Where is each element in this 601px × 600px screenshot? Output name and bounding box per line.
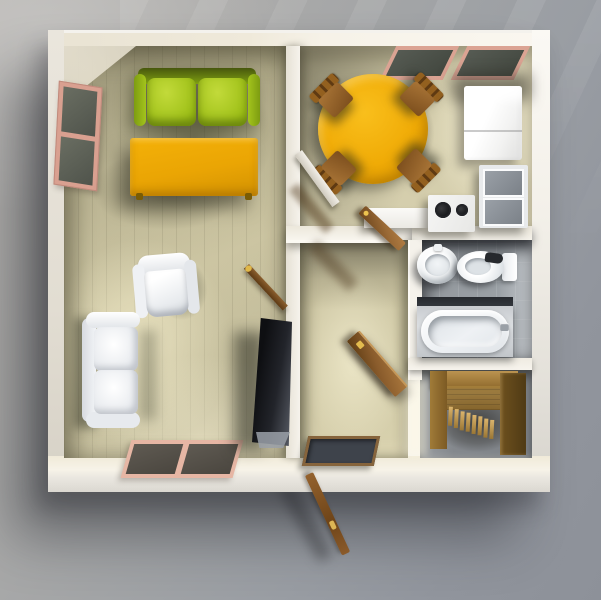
- bathtub-faucet: [500, 323, 509, 331]
- wooden-staircase: [424, 366, 528, 458]
- table-leg: [245, 193, 252, 200]
- orange-coffee-table: [130, 138, 258, 196]
- railing-slat: [483, 419, 488, 438]
- door-knob: [363, 210, 370, 217]
- railing-slat: [472, 415, 477, 434]
- green-sofa: [134, 68, 260, 130]
- sofa-armrest-left: [134, 74, 146, 126]
- fridge-door-seam: [464, 130, 522, 132]
- front-door-cast-shadow: [278, 480, 332, 562]
- door-knob: [356, 340, 365, 349]
- stove-burner: [456, 204, 468, 216]
- sink-faucet: [434, 244, 442, 251]
- floorplan-render: [0, 0, 601, 600]
- railing-slat: [460, 411, 465, 430]
- sofa-cushion: [147, 78, 196, 126]
- staircase-side-panel: [500, 373, 526, 455]
- staircase-stringer: [430, 371, 447, 449]
- loveseat-cushion: [94, 327, 138, 371]
- doormat: [302, 436, 380, 466]
- toilet-tank: [502, 253, 517, 281]
- window-pane: [181, 444, 239, 474]
- white-loveseat: [82, 312, 144, 428]
- bathtub-basin: [428, 316, 502, 347]
- wall-east: [532, 30, 550, 492]
- railing-slat: [448, 407, 453, 426]
- sofa-cushion: [198, 78, 247, 126]
- window-pane: [126, 444, 184, 474]
- toilet: [457, 249, 517, 287]
- sink-basin: [425, 254, 450, 276]
- loveseat-armrest-top: [86, 312, 140, 328]
- bathroom-sink: [417, 246, 458, 284]
- table-leg: [136, 193, 143, 200]
- window-pane: [59, 136, 95, 186]
- living-room-window-front: [121, 440, 244, 478]
- railing-slat: [489, 420, 494, 439]
- staircase-railing-slats: [447, 407, 501, 444]
- door-knob: [329, 520, 337, 530]
- sofa-armrest-right: [248, 74, 260, 126]
- loveseat-cushion: [94, 370, 138, 414]
- bathtub: [417, 297, 513, 357]
- stove: [428, 195, 475, 232]
- cabinet-glass-door: [483, 169, 524, 197]
- railing-slat: [477, 416, 482, 435]
- stove-burner: [435, 202, 451, 218]
- refrigerator: [464, 86, 522, 160]
- loveseat-armrest-bottom: [86, 412, 140, 428]
- railing-slat: [454, 409, 459, 428]
- armchair-seat: [144, 268, 190, 317]
- railing-slat: [466, 413, 471, 432]
- glass-cabinet: [479, 165, 528, 228]
- cabinet-glass-door: [483, 198, 524, 226]
- window-pane: [61, 86, 97, 136]
